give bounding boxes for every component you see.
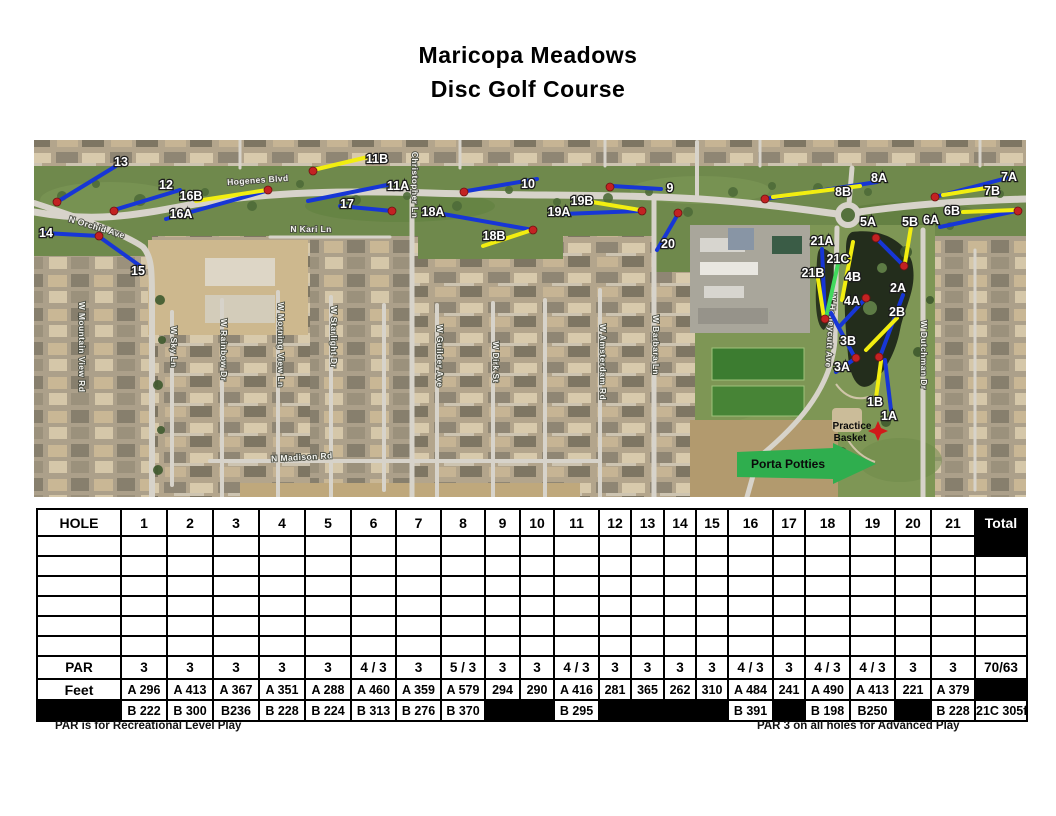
hole-number-header: 20 [895,509,931,536]
par-cell: 3 [167,656,213,679]
feet-total-cell [975,679,1027,700]
hole-marker-label: 6B [944,204,960,218]
score-cell [441,616,485,636]
score-cell [351,636,396,656]
score-total-cell [975,616,1027,636]
score-cell [396,556,441,576]
hole-line-6B [963,210,1016,212]
score-cell [554,556,599,576]
b-tee-cell: B 391 [728,700,773,721]
hole-marker-label: 4B [845,270,861,284]
feet-cell: A 490 [805,679,850,700]
par-row-label: PAR [37,656,121,679]
score-cell [599,616,631,636]
hole-marker-label: 3B [840,334,856,348]
hole-number-header: 18 [805,509,850,536]
feet-cell: A 351 [259,679,305,700]
par-cell: 4 / 3 [728,656,773,679]
feet-cell: 241 [773,679,805,700]
score-cell [441,536,485,556]
b-tee-cell: B 370 [441,700,485,721]
b-tee-cell [895,700,931,721]
par-cell: 3 [396,656,441,679]
b-tee-cell [696,700,728,721]
score-cell [305,636,351,656]
hole-marker-label: 20 [661,237,675,251]
basket-marker [309,167,317,175]
hole-number-header: 7 [396,509,441,536]
par-cell: 3 [664,656,696,679]
hole-marker-label: 11B [366,152,388,166]
hole-marker-label: 21C [827,252,850,266]
feet-cell: A 416 [554,679,599,700]
score-cell [599,536,631,556]
hole-number-header: 5 [305,509,351,536]
b-tee-cell: B236 [213,700,259,721]
score-cell [895,636,931,656]
score-cell [213,636,259,656]
hole-marker-label: 21A [811,234,834,248]
score-cell [167,556,213,576]
score-cell [520,596,554,616]
hole-marker-label: 19B [571,194,594,208]
score-cell [213,596,259,616]
score-cell [121,556,167,576]
score-cell [599,636,631,656]
score-cell [696,576,728,596]
par-cell: 3 [213,656,259,679]
score-cell [895,596,931,616]
hole-number-header: 1 [121,509,167,536]
hole-number-header: 17 [773,509,805,536]
score-cell [351,596,396,616]
hole-marker-label: 19A [548,205,571,219]
score-row-label [37,536,121,556]
score-cell [631,616,664,636]
score-cell [520,616,554,636]
feet-cell: A 579 [441,679,485,700]
score-cell [931,556,975,576]
score-cell [554,616,599,636]
score-cell [259,576,305,596]
par-cell: 3 [631,656,664,679]
score-cell [485,556,520,576]
scorecard: HOLE123456789101112131415161718192021Tot… [36,508,1028,722]
b-tee-cell: B 198 [805,700,850,721]
score-cell [259,536,305,556]
basket-marker [1014,207,1022,215]
par-cell: 3 [485,656,520,679]
score-cell [485,616,520,636]
score-cell [520,636,554,656]
hole-marker-label: 18B [483,229,506,243]
par-cell: 5 / 3 [441,656,485,679]
score-cell [664,576,696,596]
title-line-1: Maricopa Meadows [0,38,1056,72]
score-total-cell [975,636,1027,656]
score-cell [728,536,773,556]
b-tee-cell: B 276 [396,700,441,721]
street-label: N Kari Ln [290,224,331,234]
hole-marker-label: 5A [860,215,876,229]
score-cell [895,556,931,576]
footnote-advanced: PAR 3 on all holes for Advanced Play [757,720,960,732]
score-cell [696,636,728,656]
score-cell [167,616,213,636]
b-tee-cell: B 300 [167,700,213,721]
score-cell [805,616,850,636]
hole-marker-label: 16B [180,189,203,203]
street-label: Christopher Ln [410,152,420,219]
score-cell [931,596,975,616]
score-cell [441,636,485,656]
par-total-cell: 70/63 [975,656,1027,679]
hole-marker-label: 8A [871,171,887,185]
feet-cell: A 460 [351,679,396,700]
b-tee-cell [599,700,631,721]
hole-number-header: 11 [554,509,599,536]
score-cell [554,636,599,656]
street-label: W Amsterdam Rd [598,324,608,400]
b-tee-cell: B250 [850,700,895,721]
score-cell [931,576,975,596]
score-cell [599,556,631,576]
score-cell [351,616,396,636]
par-cell: 3 [895,656,931,679]
basket-marker [674,209,682,217]
basket-marker [95,232,103,240]
hole-marker-label: 9 [667,181,674,195]
score-cell [805,536,850,556]
par-cell: 4 / 3 [351,656,396,679]
b-tee-cell: B 228 [259,700,305,721]
basket-marker [875,353,883,361]
hole-marker-label: 2A [890,281,906,295]
score-cell [520,556,554,576]
basket-marker [264,186,272,194]
score-cell [696,616,728,636]
hole-marker-label: 21B [802,266,825,280]
hole-marker-label: 14 [39,226,53,240]
score-cell [850,576,895,596]
basket-marker [852,354,860,362]
score-cell [121,596,167,616]
score-total-cell [975,596,1027,616]
hole-number-header: 21 [931,509,975,536]
score-cell [213,536,259,556]
score-cell [396,536,441,556]
score-cell [728,596,773,616]
score-cell [305,556,351,576]
score-cell [396,576,441,596]
b-tee-cell [631,700,664,721]
score-cell [441,596,485,616]
title-line-2: Disc Golf Course [0,72,1056,106]
score-cell [305,616,351,636]
basket-marker [110,207,118,215]
basket-marker [821,315,829,323]
basket-marker [388,207,396,215]
hole-marker-label: 11A [387,179,409,193]
hole-number-header: 3 [213,509,259,536]
score-cell [696,536,728,556]
score-cell [351,556,396,576]
score-cell [850,636,895,656]
basket-marker [761,195,769,203]
scorecard-table: HOLE123456789101112131415161718192021Tot… [36,508,1028,722]
score-cell [773,616,805,636]
score-cell [259,596,305,616]
score-cell [554,536,599,556]
b-tee-cell: B 313 [351,700,396,721]
hole-marker-label: 13 [114,155,128,169]
score-row-label [37,636,121,656]
score-cell [485,576,520,596]
hole-number-header: 6 [351,509,396,536]
hole-number-header: 8 [441,509,485,536]
score-cell [485,636,520,656]
score-cell [259,636,305,656]
score-cell [599,576,631,596]
hole-marker-label: 8B [835,185,851,199]
b-tee-cell: B 222 [121,700,167,721]
score-cell [396,636,441,656]
street-label: W Dirk St [491,341,501,382]
par-cell: 3 [696,656,728,679]
score-cell [213,616,259,636]
par-cell: 4 / 3 [554,656,599,679]
hole-header-label: HOLE [37,509,121,536]
score-cell [895,536,931,556]
b-tee-cell [520,700,554,721]
score-cell [520,536,554,556]
hole-number-header: 16 [728,509,773,536]
score-cell [121,576,167,596]
feet-cell: 294 [485,679,520,700]
feet-cell: A 367 [213,679,259,700]
score-total-cell [975,576,1027,596]
basket-marker [460,188,468,196]
par-cell: 3 [773,656,805,679]
basket-marker [931,193,939,201]
score-cell [213,556,259,576]
score-cell [121,616,167,636]
street-label: W Guilder Ave [435,325,445,388]
basket-marker [529,226,537,234]
hole-number-header: 10 [520,509,554,536]
b-tee-cell: B 228 [931,700,975,721]
hole-number-header: 9 [485,509,520,536]
score-cell [441,576,485,596]
hole-marker-label: 7A [1001,170,1017,184]
hole-number-header: 19 [850,509,895,536]
page-title: Maricopa Meadows Disc Golf Course [0,38,1056,106]
feet-cell: 262 [664,679,696,700]
score-cell [850,556,895,576]
feet-cell: 221 [895,679,931,700]
score-cell [931,616,975,636]
hole-number-header: 14 [664,509,696,536]
feet-cell: A 413 [167,679,213,700]
score-cell [351,576,396,596]
score-cell [664,636,696,656]
feet-cell: A 288 [305,679,351,700]
basket-marker [638,207,646,215]
par-cell: 3 [520,656,554,679]
score-cell [441,556,485,576]
par-cell: 3 [599,656,631,679]
b-tee-cell: B 224 [305,700,351,721]
score-cell [631,576,664,596]
score-cell [259,616,305,636]
hole-marker-label: 1B [867,395,883,409]
hole-number-header: 2 [167,509,213,536]
par-cell: 3 [305,656,351,679]
feet-row-label: Feet [37,679,121,700]
score-cell [728,556,773,576]
hole-marker-label: 18A [422,205,445,219]
score-cell [895,576,931,596]
score-cell [805,576,850,596]
feet-cell: 310 [696,679,728,700]
b-tee-cell [664,700,696,721]
score-cell [631,536,664,556]
basket-marker [862,294,870,302]
feet-cell: A 359 [396,679,441,700]
score-total-cell [975,556,1027,576]
feet-cell: A 296 [121,679,167,700]
score-cell [259,556,305,576]
score-cell [664,616,696,636]
porta-potties-label: Porta Potties [751,457,825,471]
score-row-label [37,596,121,616]
score-cell [805,556,850,576]
feet-cell: A 379 [931,679,975,700]
feet-cell: A 413 [850,679,895,700]
score-cell [773,536,805,556]
score-cell [351,536,396,556]
score-cell [305,596,351,616]
score-cell [396,616,441,636]
score-cell [805,636,850,656]
street-label: W Starlight Dr [329,306,339,369]
score-cell [554,576,599,596]
score-cell [931,636,975,656]
hole-marker-label: 4A [844,294,860,308]
score-cell [305,576,351,596]
score-cell [773,596,805,616]
basket-marker [900,262,908,270]
score-cell [305,536,351,556]
b-tee-total-cell: 21C 305ft [975,700,1027,721]
b-tee-cell: B 295 [554,700,599,721]
hole-marker-label: 10 [521,177,535,191]
course-map-image: Hogenes BlvdN Orchid AveN Kari LnChristo… [34,140,1026,497]
feet-cell: 281 [599,679,631,700]
score-cell [773,556,805,576]
score-cell [728,576,773,596]
par-cell: 4 / 3 [805,656,850,679]
course-flyer-page: Maricopa Meadows Disc Golf Course [0,0,1056,816]
score-cell [167,536,213,556]
hole-marker-label: 6A [923,213,939,227]
hole-number-header: 4 [259,509,305,536]
score-cell [850,596,895,616]
score-cell [554,596,599,616]
street-label: W Barbara Ln [651,315,661,375]
score-cell [121,636,167,656]
hole-marker-label: 1A [881,409,897,423]
hole-number-header: 15 [696,509,728,536]
score-row-label [37,556,121,576]
hole-marker-label: 7B [984,184,1000,198]
practice-basket-label-1: Practice [833,421,872,432]
score-cell [631,556,664,576]
score-total-cell [975,536,1027,556]
score-cell [213,576,259,596]
score-cell [485,536,520,556]
score-cell [773,576,805,596]
score-row-label [37,616,121,636]
hole-marker-label: 5B [902,215,918,229]
score-cell [167,596,213,616]
hole-marker-label: 16A [170,207,193,221]
score-cell [805,596,850,616]
score-cell [485,596,520,616]
hole-marker-label: 3A [834,360,850,374]
score-cell [631,636,664,656]
score-cell [664,556,696,576]
par-cell: 3 [931,656,975,679]
hole-marker-label: 17 [340,197,354,211]
street-label: W Dutchman Dr [919,321,929,390]
hole-marker-label: 15 [131,264,145,278]
score-cell [728,636,773,656]
b-tee-row-label [37,700,121,721]
hole-number-header: 13 [631,509,664,536]
score-cell [664,536,696,556]
score-cell [728,616,773,636]
street-label: W Mountain View Rd [77,302,87,393]
score-cell [121,536,167,556]
score-cell [631,596,664,616]
hole-number-header: 12 [599,509,631,536]
score-cell [696,556,728,576]
street-label: W Rainbow Dr [219,319,229,382]
score-cell [167,636,213,656]
score-cell [850,536,895,556]
b-tee-cell [773,700,805,721]
basket-marker [606,183,614,191]
hole-marker-label: 12 [159,178,173,192]
total-header: Total [975,509,1027,536]
score-cell [696,596,728,616]
score-cell [895,616,931,636]
b-tee-cell [485,700,520,721]
hole-marker-label: 2B [889,305,905,319]
feet-cell: 365 [631,679,664,700]
score-cell [850,616,895,636]
score-cell [599,596,631,616]
practice-basket-label-2: Basket [834,433,867,444]
score-cell [167,576,213,596]
feet-cell: 290 [520,679,554,700]
footnote-recreational: PAR is for Recreational Level Play [55,720,241,732]
score-cell [396,596,441,616]
feet-cell: A 484 [728,679,773,700]
score-cell [773,636,805,656]
basket-marker [53,198,61,206]
